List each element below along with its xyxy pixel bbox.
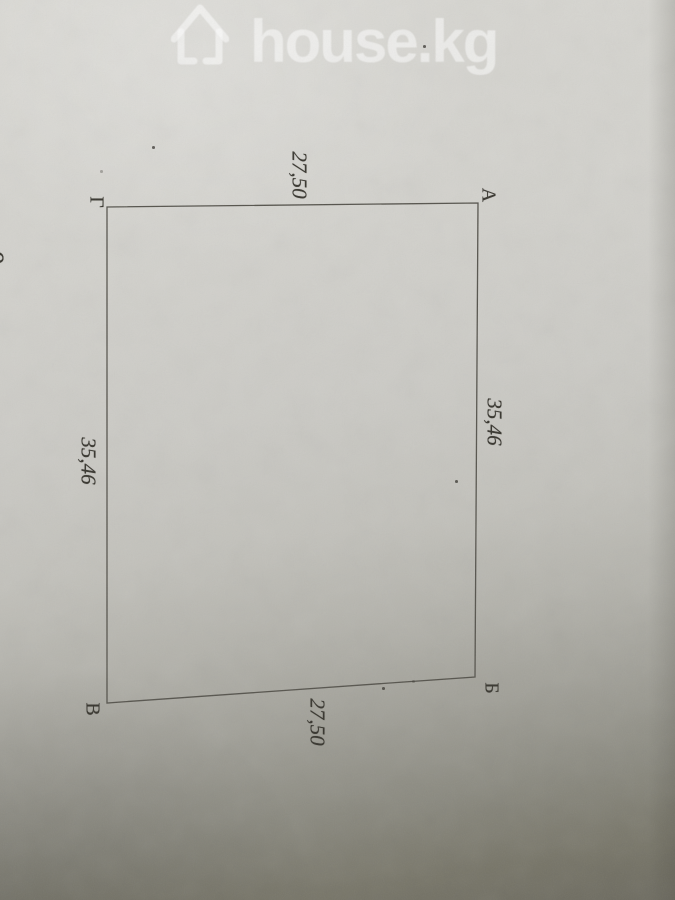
plot-polygon bbox=[107, 203, 478, 703]
corner-label-b: Б bbox=[480, 682, 503, 693]
edge-partial-text: 9 bbox=[0, 251, 9, 264]
measurement-top: 27,50 bbox=[287, 151, 312, 198]
measurement-right: 35,46 bbox=[482, 398, 507, 445]
house-icon bbox=[171, 2, 229, 66]
plot-plan-photo: house.kg А Б В Г 27,50 35,46 35,46 27,50… bbox=[0, 0, 675, 900]
corner-label-v: В bbox=[81, 702, 104, 715]
watermark: house.kg bbox=[0, 0, 675, 90]
paper-speck bbox=[382, 687, 385, 690]
paper-speck bbox=[412, 680, 415, 683]
paper-speck bbox=[152, 146, 155, 149]
plot-diagram bbox=[0, 0, 675, 900]
corner-label-a: А bbox=[477, 188, 500, 202]
corner-label-g: Г bbox=[85, 196, 108, 208]
measurement-left: 35,46 bbox=[76, 437, 101, 484]
watermark-text: house.kg bbox=[250, 12, 497, 72]
paper-speck bbox=[100, 170, 103, 173]
paper-speck bbox=[455, 480, 458, 483]
measurement-bottom: 27,50 bbox=[305, 698, 330, 745]
